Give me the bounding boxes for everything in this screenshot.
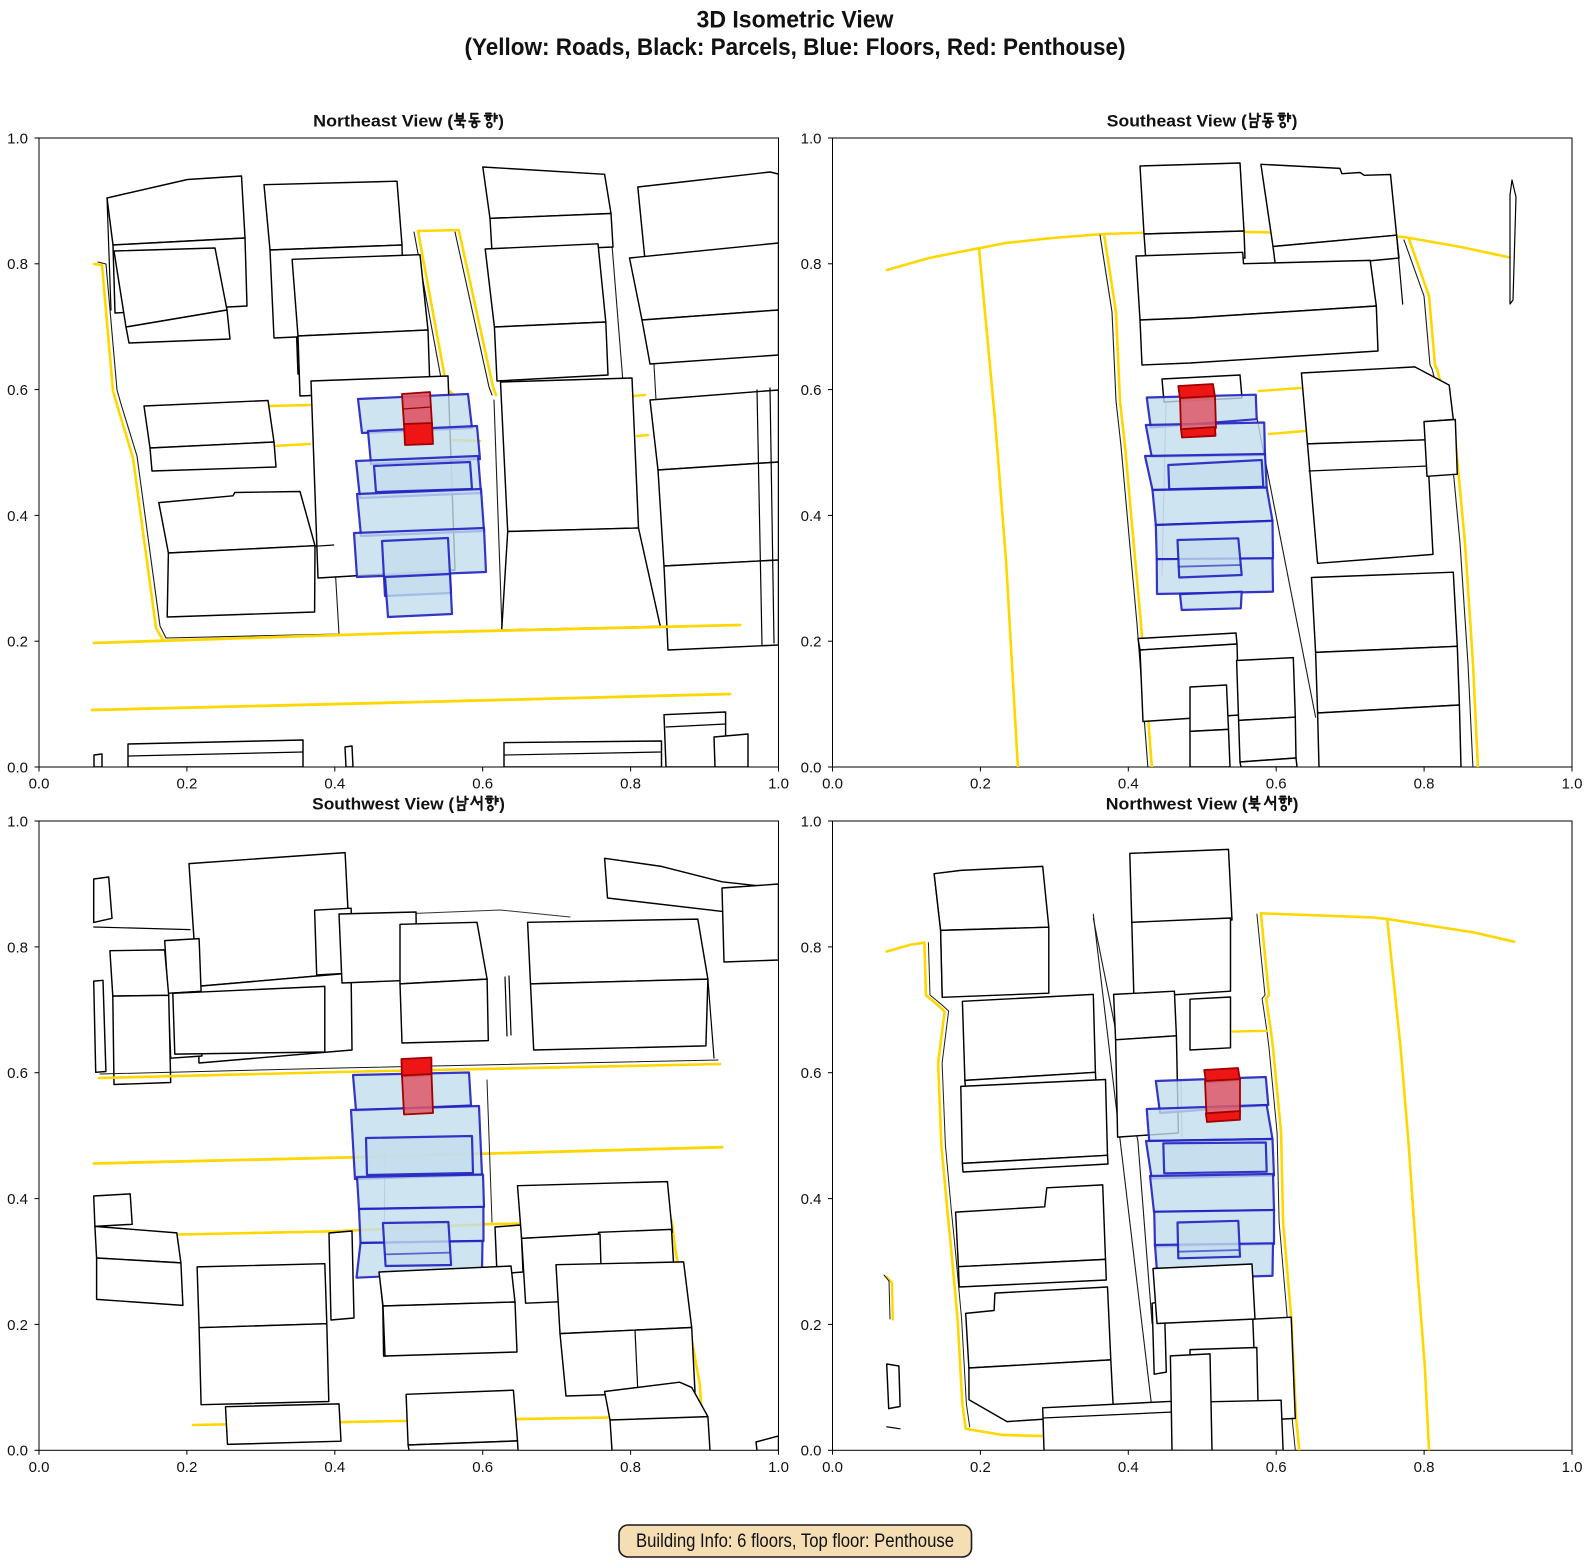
svg-text:): ) (498, 112, 504, 131)
svg-text:0.8: 0.8 (620, 1459, 641, 1476)
svg-text:1.0: 1.0 (768, 1459, 789, 1476)
svg-text:0.8: 0.8 (801, 939, 822, 956)
svg-text:0.6: 0.6 (801, 382, 822, 399)
svg-text:1.0: 1.0 (1562, 776, 1583, 793)
svg-text:0.4: 0.4 (801, 508, 822, 525)
svg-text:1.0: 1.0 (801, 813, 822, 830)
svg-text:0.6: 0.6 (1266, 776, 1287, 793)
svg-text:0.8: 0.8 (620, 776, 641, 793)
svg-text:0.2: 0.2 (7, 634, 28, 651)
svg-text:0.0: 0.0 (822, 776, 843, 793)
svg-text:Southwest View (: Southwest View ( (312, 795, 454, 814)
svg-text:0.8: 0.8 (1414, 776, 1435, 793)
svg-text:0.0: 0.0 (7, 1443, 28, 1460)
svg-text:0.6: 0.6 (1266, 1459, 1287, 1476)
svg-text:0.8: 0.8 (7, 256, 28, 273)
svg-text:1.0: 1.0 (801, 130, 822, 147)
svg-text:0.0: 0.0 (822, 1459, 843, 1476)
svg-text:): ) (1293, 795, 1299, 814)
svg-text:0.4: 0.4 (324, 1459, 345, 1476)
svg-text:1.0: 1.0 (7, 813, 28, 830)
svg-text:0.2: 0.2 (176, 776, 197, 793)
svg-text:0.2: 0.2 (176, 1459, 197, 1476)
svg-text:0.4: 0.4 (324, 776, 345, 793)
svg-text:0.0: 0.0 (801, 1443, 822, 1460)
svg-text:Northwest View (: Northwest View ( (1106, 795, 1248, 814)
svg-text:0.8: 0.8 (1414, 1459, 1435, 1476)
svg-text:0.6: 0.6 (472, 1459, 493, 1476)
svg-text:0.2: 0.2 (970, 776, 991, 793)
svg-text:0.2: 0.2 (801, 1317, 822, 1334)
svg-text:0.8: 0.8 (801, 256, 822, 273)
svg-text:0.0: 0.0 (801, 759, 822, 776)
svg-text:Northeast View (: Northeast View ( (313, 112, 453, 131)
svg-text:0.8: 0.8 (7, 939, 28, 956)
svg-text:0.6: 0.6 (7, 1065, 28, 1082)
svg-text:1.0: 1.0 (1562, 1459, 1583, 1476)
svg-text:1.0: 1.0 (7, 130, 28, 147)
svg-text:0.0: 0.0 (29, 776, 50, 793)
svg-text:0.4: 0.4 (1118, 776, 1139, 793)
svg-text:0.6: 0.6 (7, 382, 28, 399)
svg-text:(Yellow: Roads, Black: Parcels: (Yellow: Roads, Black: Parcels, Blue: Fl… (465, 34, 1126, 61)
svg-text:3D Isometric View: 3D Isometric View (697, 7, 895, 34)
svg-text:1.0: 1.0 (768, 776, 789, 793)
svg-text:0.4: 0.4 (7, 1191, 28, 1208)
svg-text:0.6: 0.6 (801, 1065, 822, 1082)
svg-text:): ) (499, 795, 505, 814)
svg-text:0.0: 0.0 (29, 1459, 50, 1476)
svg-text:0.4: 0.4 (801, 1191, 822, 1208)
svg-text:0.0: 0.0 (7, 759, 28, 776)
svg-text:Southeast View (: Southeast View ( (1107, 112, 1247, 131)
svg-text:0.4: 0.4 (1118, 1459, 1139, 1476)
svg-text:0.2: 0.2 (970, 1459, 991, 1476)
svg-text:0.2: 0.2 (801, 634, 822, 651)
svg-text:0.4: 0.4 (7, 508, 28, 525)
svg-text:0.2: 0.2 (7, 1317, 28, 1334)
svg-text:Building Info: 6 floors, Top f: Building Info: 6 floors, Top floor: Pent… (636, 1531, 954, 1552)
svg-text:): ) (1292, 112, 1298, 131)
svg-text:0.6: 0.6 (472, 776, 493, 793)
